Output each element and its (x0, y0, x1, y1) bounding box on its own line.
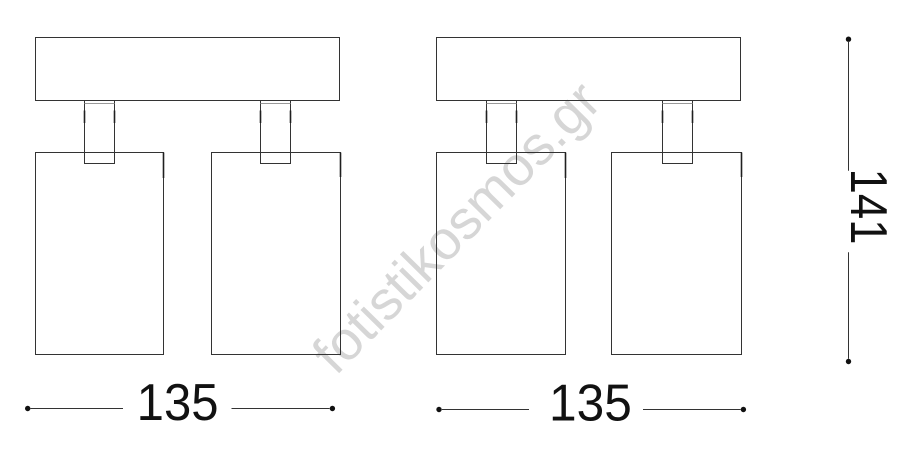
svg-text:135: 135 (549, 373, 632, 431)
svg-text:141: 141 (839, 168, 896, 244)
svg-text:135: 135 (137, 372, 219, 431)
